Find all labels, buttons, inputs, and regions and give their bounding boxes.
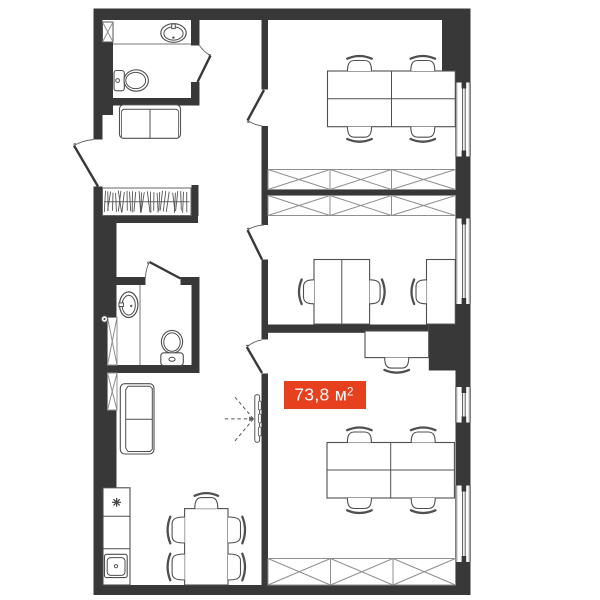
svg-text:73,8 м2: 73,8 м2: [294, 385, 353, 405]
